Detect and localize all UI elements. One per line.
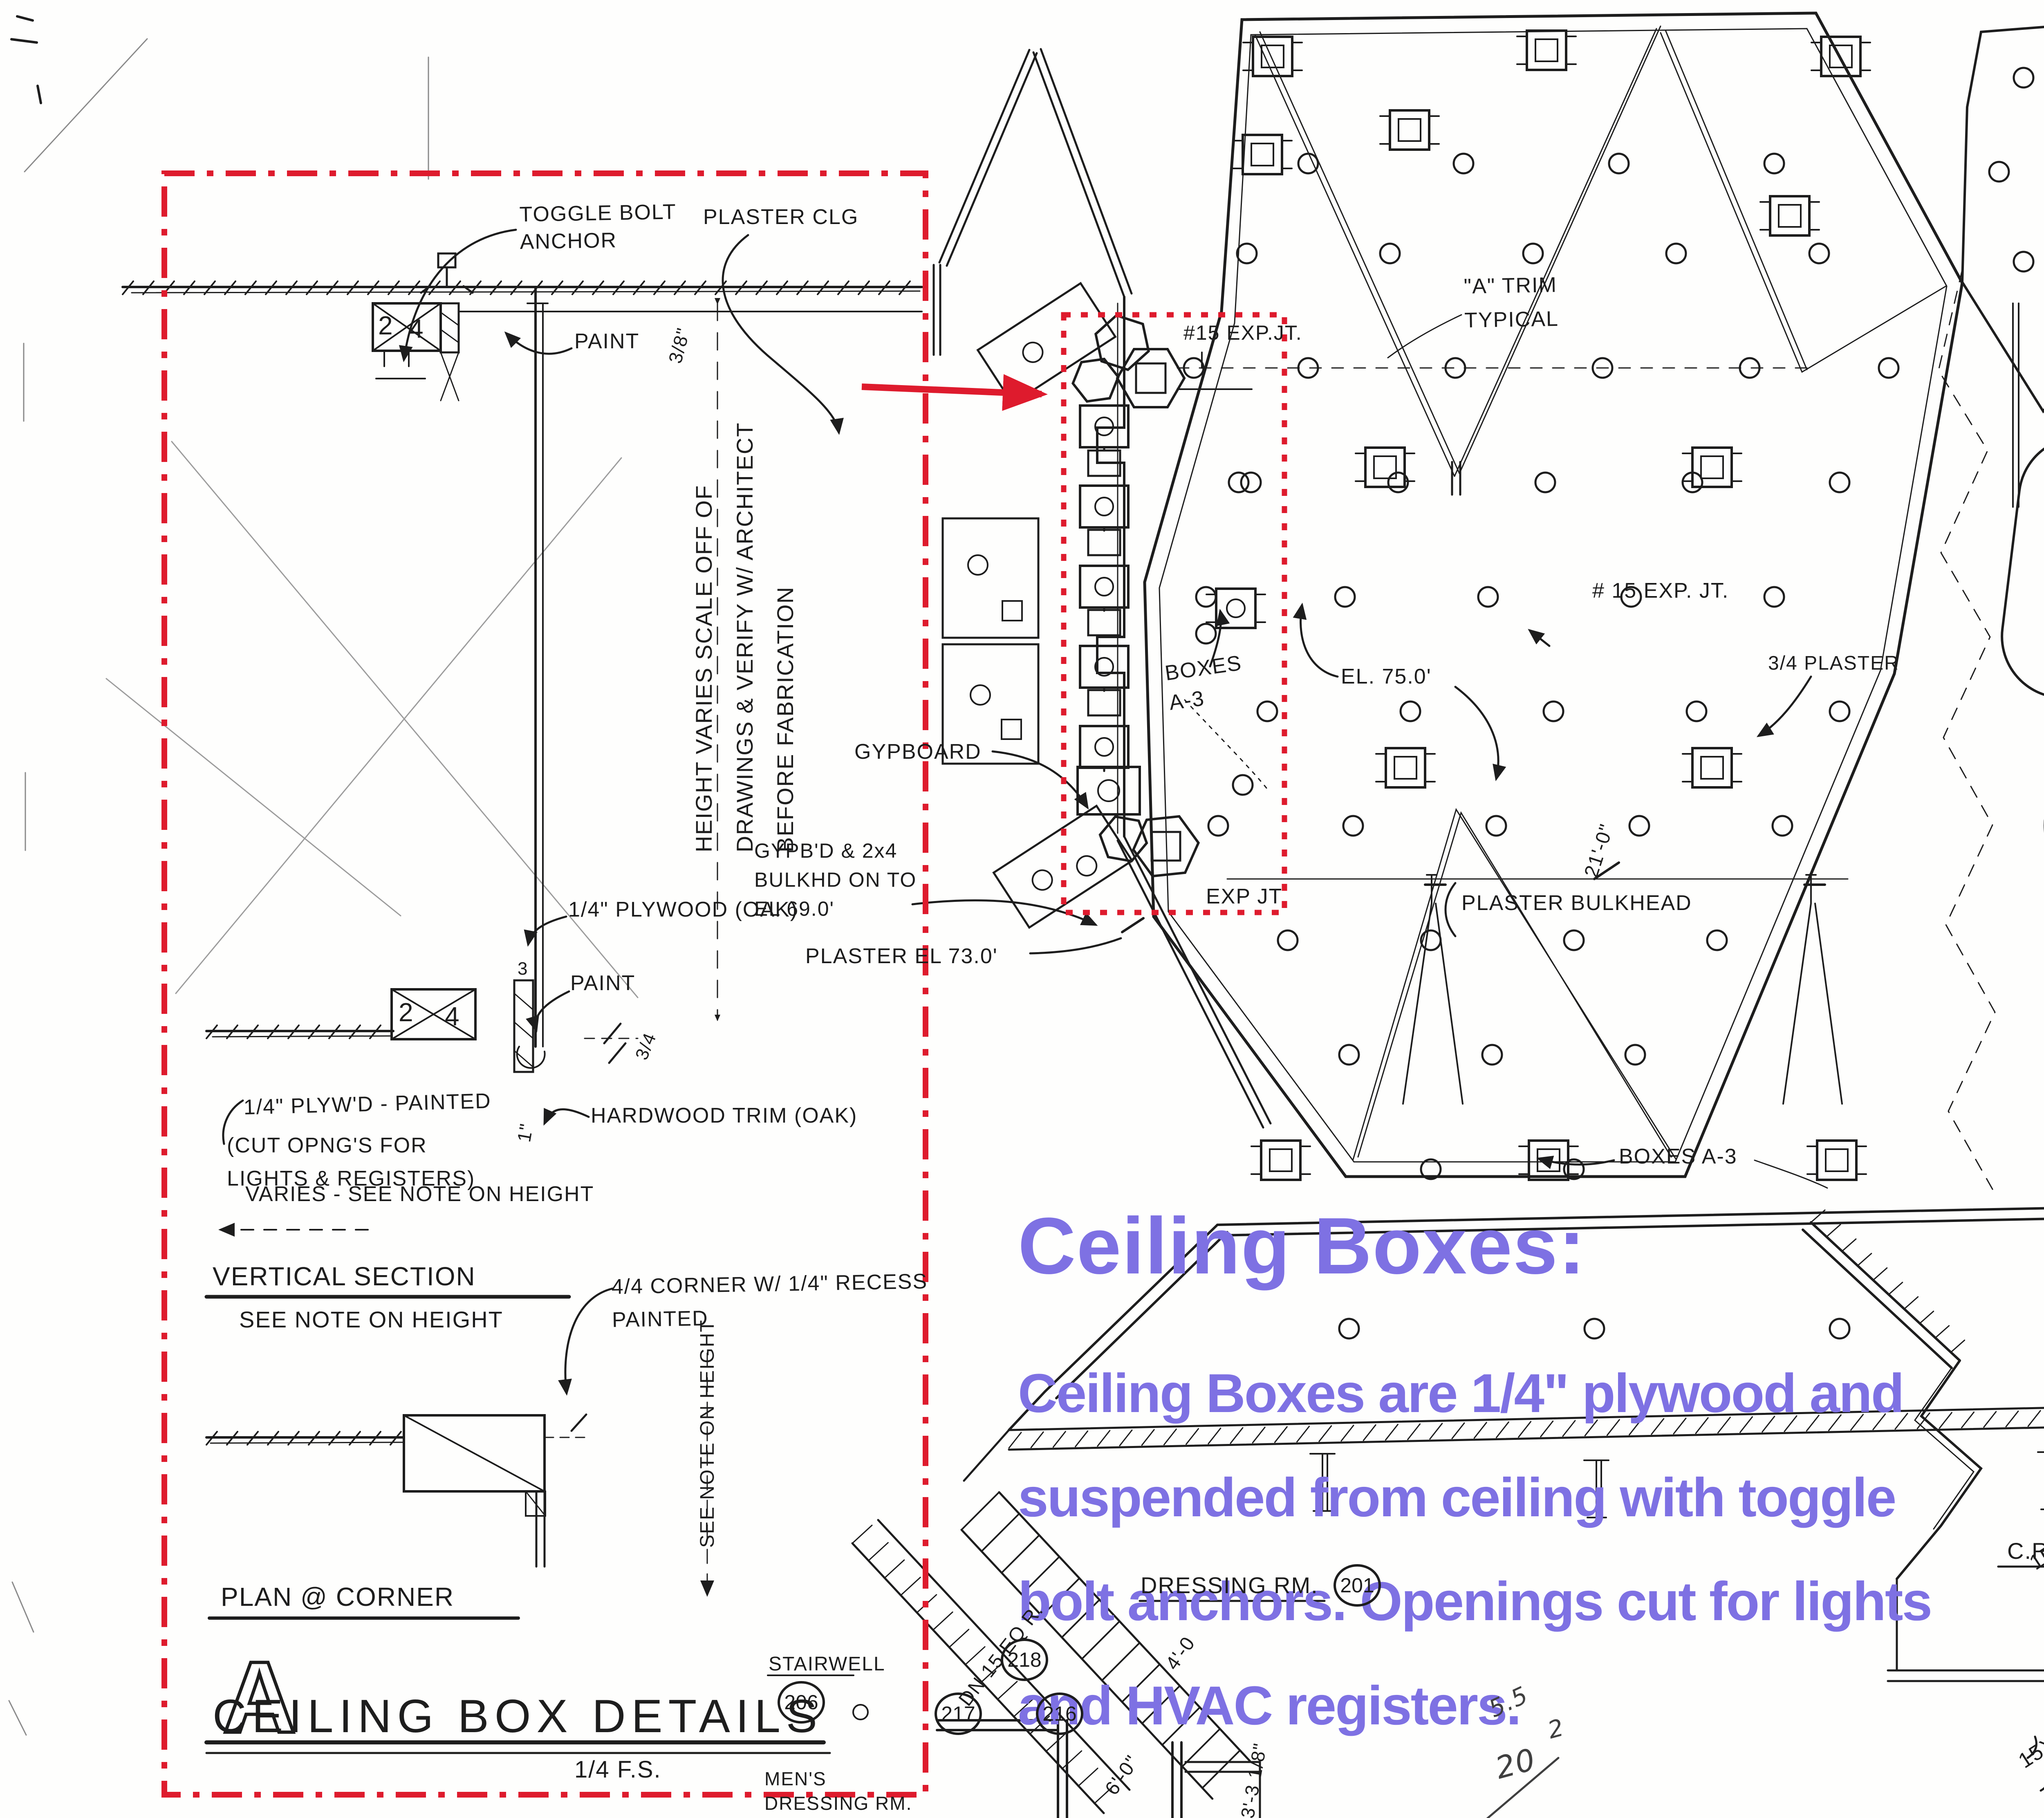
badge-room-218: 218 xyxy=(1001,1639,1048,1681)
label-plaster-clg: PLASTER CLG xyxy=(703,204,858,231)
label-num-4-top: 4 xyxy=(409,312,424,346)
label-hardwood-trim: HARDWOOD TRIM (OAK) xyxy=(591,1102,857,1130)
label-exp-jt-mid: # 15 EXP. JT. xyxy=(1592,577,1729,605)
label-paint-mid: PAINT xyxy=(570,970,635,997)
label-boxes-a3: BOXES A-3 xyxy=(1163,648,1248,718)
label-sheet-title: CEILING BOX DETAILS xyxy=(213,1687,823,1746)
label-height-note: HEIGHT VARIES SCALE OFF OF DRAWINGS & VE… xyxy=(684,422,806,852)
label-scale-note: 1/4 F.S. xyxy=(574,1755,661,1785)
label-exp-jt-bot: EXP JT xyxy=(1206,883,1282,910)
overlay-paragraph: Ceiling Boxes are 1/4" plywood and suspe… xyxy=(1018,1342,1931,1758)
label-corner-note: 4/4 CORNER W/ 1/4" RECESS PAINTED xyxy=(611,1265,928,1337)
badge-room-217: 217 xyxy=(935,1692,982,1735)
label-num-2-top: 2 xyxy=(378,309,394,343)
badge-room-201: 201 xyxy=(1334,1564,1381,1607)
label-plaster-34: 3/4 PLASTER xyxy=(1768,651,1899,676)
label-see-note-height: SEE NOTE ON HEIGHT xyxy=(239,1305,503,1334)
label-vertical-section: VERTICAL SECTION xyxy=(213,1260,476,1293)
label-exp-jt-top: #15 EXP.JT. xyxy=(1183,320,1302,346)
label-dressing-rm: DRESSING RM. xyxy=(1141,1571,1318,1600)
label-boxes-a3-br: BOXES A-3 xyxy=(1619,1143,1737,1170)
label-num-2-mid: 2 xyxy=(399,996,414,1029)
highlight-arrow xyxy=(862,387,1042,394)
badge-room-206: 206 xyxy=(778,1681,825,1724)
label-plaster-el: PLASTER EL 73.0' xyxy=(805,943,998,970)
label-paint-top: PAINT xyxy=(574,328,639,355)
label-dim-1in: 1" xyxy=(512,1121,539,1144)
label-a-trim: "A" TRIM TYPICAL xyxy=(1464,268,1559,338)
label-plaster-bulkhead: PLASTER BULKHEAD xyxy=(1461,890,1692,917)
drawing-sheet: TOGGLE BOLT ANCHOR PLASTER CLG 3/8" PAIN… xyxy=(0,0,2044,1818)
label-el-75: EL. 75.0' xyxy=(1341,663,1432,690)
overlay-heading: Ceiling Boxes: xyxy=(1018,1200,1586,1292)
badge-room-216: 216 xyxy=(1036,1692,1083,1735)
label-see-note-height-v: SEE NOTE ON HEIGHT xyxy=(695,1319,720,1548)
label-plan-corner: PLAN @ CORNER xyxy=(221,1580,454,1614)
label-gypbd-note: GYPB'D & 2x4 BULKHD ON TO EL 69.0' xyxy=(754,836,917,924)
label-mens-dressing: MEN'S DRESSING RM. xyxy=(764,1767,912,1816)
label-varies-note: VARIES - SEE NOTE ON HEIGHT xyxy=(245,1181,594,1208)
label-num-4-mid: 4 xyxy=(445,1000,460,1033)
label-toggle-bolt-anchor: TOGGLE BOLT ANCHOR xyxy=(519,198,677,256)
label-num-3-stud: 3 xyxy=(518,957,528,980)
label-gypboard: GYPBOARD xyxy=(854,738,982,766)
label-stairwell: STAIRWELL xyxy=(769,1652,885,1677)
